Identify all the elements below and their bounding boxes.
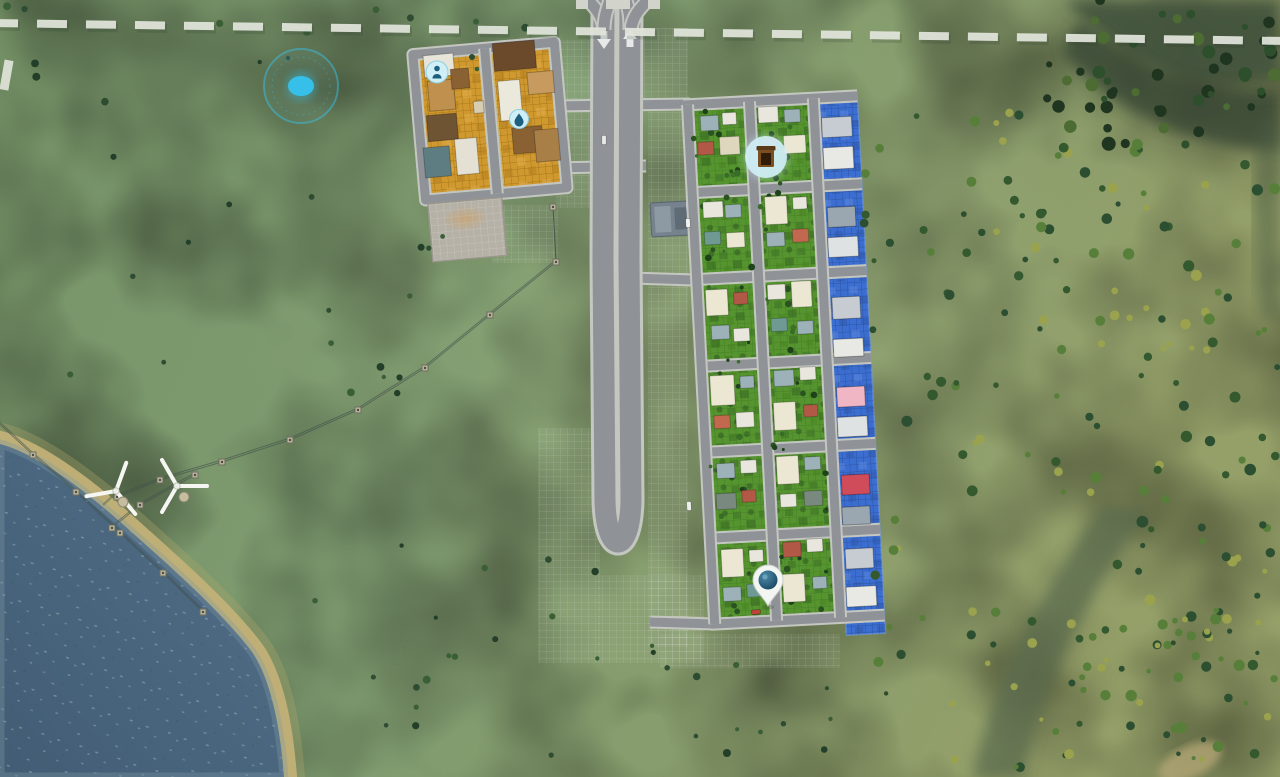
tree [1227, 629, 1232, 634]
tree [1239, 457, 1246, 464]
house[interactable] [721, 548, 744, 577]
power-pylon-top [139, 504, 141, 506]
tree [1020, 213, 1025, 218]
tree [258, 60, 262, 64]
tree [1104, 77, 1112, 85]
power-pylon-top [357, 409, 359, 411]
house[interactable] [771, 318, 788, 332]
house[interactable] [749, 549, 764, 562]
ramp-abutment [618, 0, 630, 9]
turbine-base [179, 492, 189, 502]
tree [1079, 674, 1085, 680]
tree [875, 144, 884, 153]
tree [1255, 620, 1261, 626]
tree [1116, 201, 1121, 206]
house[interactable] [719, 136, 740, 155]
commercial-building[interactable] [828, 236, 859, 258]
tree [1087, 488, 1095, 496]
tree [1111, 287, 1118, 294]
concrete-lot[interactable] [428, 197, 507, 261]
tree [961, 211, 967, 217]
tree [723, 749, 731, 757]
tree [1262, 569, 1267, 574]
tree [1005, 109, 1013, 117]
tree [549, 753, 554, 758]
tree [1055, 152, 1062, 159]
tree [347, 389, 355, 397]
tree [1145, 595, 1156, 606]
tree [1208, 91, 1215, 98]
tree [1199, 538, 1206, 545]
tree [1037, 326, 1042, 331]
tree [924, 373, 931, 380]
tree [862, 211, 870, 219]
house[interactable] [697, 141, 714, 155]
tree [1014, 110, 1023, 119]
tree [473, 19, 479, 25]
tree [549, 613, 555, 619]
house[interactable] [704, 231, 721, 245]
tree [1028, 617, 1037, 626]
tree [1175, 722, 1186, 733]
tree [1063, 286, 1070, 293]
tree [1199, 756, 1205, 762]
house[interactable] [723, 587, 742, 602]
power-pylon-top [221, 461, 223, 463]
tree [919, 615, 925, 621]
tree [412, 722, 419, 729]
tree [1099, 185, 1106, 192]
commercial-building[interactable] [842, 506, 871, 525]
tree [1203, 346, 1210, 353]
tree [1259, 434, 1267, 442]
house[interactable] [711, 325, 730, 340]
house[interactable] [799, 366, 816, 380]
tree [1057, 345, 1066, 354]
house[interactable] [726, 232, 745, 248]
tree [1193, 126, 1204, 137]
turbine-hub [174, 483, 180, 489]
house[interactable] [780, 494, 797, 508]
tree [1254, 593, 1260, 599]
tree [1103, 124, 1112, 133]
tree [407, 293, 412, 298]
connector-road[interactable] [650, 622, 714, 624]
tree [1076, 721, 1082, 727]
residential-district[interactable] [684, 96, 886, 642]
tree [1152, 69, 1164, 81]
worker-notification-icon[interactable] [426, 61, 448, 83]
tree [1250, 749, 1260, 759]
tree [1131, 88, 1139, 96]
tree [970, 116, 980, 126]
tree [927, 248, 935, 256]
tree [1256, 330, 1262, 336]
tree [1097, 31, 1110, 44]
house[interactable] [766, 232, 785, 247]
radio-pulse-effect [263, 48, 339, 124]
industrial-building[interactable] [473, 101, 484, 114]
water-notification-icon[interactable] [510, 110, 529, 129]
tree [1239, 67, 1252, 80]
commercial-building[interactable] [845, 548, 874, 569]
vehicle[interactable] [686, 218, 691, 227]
tree [920, 226, 928, 234]
tree [967, 485, 978, 496]
tree [1224, 694, 1233, 703]
tree [1051, 457, 1060, 466]
tree [67, 371, 73, 377]
tree [1108, 183, 1118, 193]
tree [396, 374, 402, 380]
commercial-building[interactable] [837, 386, 866, 407]
tree [1159, 123, 1170, 134]
tree [978, 229, 985, 236]
tree [1173, 672, 1183, 682]
house[interactable] [725, 204, 742, 218]
tree [1219, 656, 1224, 661]
house[interactable] [767, 284, 786, 300]
tree [1192, 756, 1196, 760]
tree [896, 650, 905, 659]
tree [936, 377, 946, 387]
tree [1053, 258, 1059, 264]
tree [101, 98, 109, 106]
tree [1179, 401, 1189, 411]
tree [1110, 310, 1120, 320]
tree [595, 656, 599, 660]
house[interactable] [714, 415, 731, 429]
house[interactable] [783, 541, 802, 557]
tree [384, 723, 389, 728]
house[interactable] [793, 197, 808, 210]
tree [1054, 467, 1063, 476]
house[interactable] [803, 404, 818, 417]
industrial-building[interactable] [423, 146, 452, 178]
tree [958, 450, 967, 459]
commercial-building[interactable] [832, 296, 861, 319]
tree [968, 607, 977, 616]
tree [1039, 315, 1048, 324]
tree [1100, 690, 1110, 700]
tree [953, 380, 959, 386]
vehicle[interactable] [687, 501, 692, 510]
tree [1191, 270, 1202, 281]
house[interactable] [710, 375, 736, 406]
tree [927, 390, 938, 401]
tree [1010, 196, 1019, 205]
tree [1222, 552, 1231, 561]
tree [186, 240, 191, 245]
trash-front [761, 153, 771, 165]
tree [1085, 413, 1093, 421]
tree [1257, 88, 1265, 96]
house[interactable] [797, 321, 814, 335]
tree [1104, 657, 1109, 662]
industrial-building[interactable] [527, 70, 555, 94]
house[interactable] [792, 229, 809, 243]
tree [394, 390, 400, 396]
commercial-building[interactable] [837, 416, 868, 438]
tree [1054, 393, 1059, 398]
tree [1182, 616, 1188, 622]
tree [1175, 629, 1183, 637]
tree [328, 340, 334, 346]
industrial-building[interactable] [492, 40, 536, 72]
tree [1208, 337, 1218, 347]
tree [1139, 486, 1149, 496]
house[interactable] [812, 576, 827, 589]
tree [1244, 464, 1256, 476]
tree [591, 568, 598, 575]
house[interactable] [722, 112, 737, 125]
tree [1264, 713, 1272, 721]
tree [1064, 749, 1074, 759]
tree [872, 258, 877, 263]
garbage-notification-icon[interactable] [743, 134, 789, 180]
tree [1001, 309, 1008, 316]
house[interactable] [804, 490, 823, 506]
tree [1136, 699, 1143, 706]
tree [373, 6, 380, 13]
house[interactable] [776, 455, 799, 484]
house[interactable] [700, 115, 719, 131]
tree [891, 516, 899, 524]
commercial-building[interactable] [846, 586, 877, 608]
house[interactable] [791, 281, 812, 308]
tree [966, 177, 976, 187]
tree [993, 228, 1000, 235]
tree [1201, 737, 1206, 742]
tree [1146, 669, 1151, 674]
tree [991, 608, 1000, 617]
tree [860, 219, 869, 228]
industrial-building[interactable] [450, 68, 470, 89]
house[interactable] [705, 289, 728, 316]
tree [413, 684, 420, 691]
tree [1263, 17, 1275, 29]
commercial-building[interactable] [821, 116, 852, 138]
tree [1159, 11, 1166, 18]
power-pylon-top [552, 206, 554, 208]
tree [492, 636, 498, 642]
house[interactable] [733, 328, 750, 342]
tree [1139, 373, 1144, 378]
tree [1247, 103, 1255, 111]
house[interactable] [773, 402, 796, 431]
tree [886, 239, 894, 247]
tree [1222, 471, 1229, 478]
vehicle[interactable] [602, 136, 606, 145]
tree [1101, 96, 1107, 102]
tree [825, 686, 829, 690]
house[interactable] [740, 376, 755, 389]
tree [482, 565, 488, 571]
tree [1215, 289, 1222, 296]
tree [1126, 690, 1137, 701]
tree [985, 661, 991, 667]
tree [1014, 271, 1023, 280]
industrial-building[interactable] [534, 128, 561, 162]
tree [1093, 66, 1106, 79]
tree [1181, 431, 1192, 442]
tree [1213, 741, 1224, 752]
tree [1061, 489, 1067, 495]
tree [990, 641, 996, 647]
commercial-building[interactable] [827, 206, 856, 227]
tree [1173, 380, 1179, 386]
tree [1223, 103, 1230, 110]
tree [1201, 181, 1209, 189]
tree [962, 248, 971, 257]
tree [1089, 248, 1099, 258]
tree [1039, 717, 1043, 721]
ramp-abutment [606, 0, 618, 9]
tree [326, 308, 331, 313]
tree [1160, 346, 1166, 352]
tree [650, 644, 654, 648]
power-pylon-top [489, 314, 491, 316]
tree [901, 416, 912, 427]
tree [1180, 319, 1191, 330]
tree [1036, 222, 1046, 232]
tree [821, 746, 828, 753]
power-pylon-top [32, 454, 34, 456]
house[interactable] [764, 196, 787, 225]
city-map [0, 0, 1280, 777]
tree [110, 154, 116, 160]
tree [1080, 687, 1086, 693]
power-pylon-top [119, 532, 121, 534]
house[interactable] [716, 493, 737, 510]
tree [1201, 662, 1211, 672]
tree [377, 363, 385, 371]
tree [1091, 16, 1100, 25]
tree [1059, 143, 1069, 153]
tree [1158, 619, 1168, 629]
tree [22, 6, 28, 12]
tree [1187, 631, 1196, 640]
tree [1011, 683, 1018, 690]
tree [1102, 626, 1110, 634]
vehicle[interactable] [751, 609, 760, 614]
house[interactable] [806, 538, 823, 552]
tree [1183, 260, 1194, 271]
tree [1248, 660, 1258, 670]
tree [312, 598, 318, 604]
tree [1126, 721, 1135, 730]
tree [1166, 341, 1171, 346]
house[interactable] [784, 109, 801, 123]
tree [1141, 190, 1147, 196]
house[interactable] [758, 106, 779, 123]
tree [1204, 628, 1210, 634]
house[interactable] [774, 370, 795, 387]
house[interactable] [740, 460, 757, 474]
house[interactable] [782, 573, 805, 602]
tree [1230, 392, 1241, 403]
tree [545, 556, 552, 563]
tree [861, 169, 870, 178]
tree [781, 721, 786, 726]
tree [735, 727, 739, 731]
tree [426, 246, 431, 251]
tree [870, 326, 877, 333]
house[interactable] [742, 490, 757, 503]
tree [423, 676, 431, 684]
power-pylon-top [424, 367, 426, 369]
tree [694, 734, 699, 739]
tree [884, 691, 888, 695]
tree [1143, 305, 1149, 311]
tree [871, 570, 880, 579]
tree [32, 73, 40, 81]
tree [1176, 752, 1181, 757]
tree [1172, 618, 1178, 624]
commercial-building[interactable] [833, 338, 864, 358]
tree [951, 755, 959, 763]
game-viewport[interactable] [0, 0, 1280, 777]
tree [1171, 640, 1176, 645]
tree [1213, 608, 1219, 614]
house[interactable] [733, 292, 748, 305]
tree [889, 545, 899, 555]
industrial-building[interactable] [426, 113, 458, 142]
commercial-building[interactable] [841, 474, 870, 495]
tree [1224, 293, 1232, 301]
tree [452, 653, 458, 659]
tree [399, 543, 403, 547]
commercial-building[interactable] [823, 146, 854, 170]
tree [434, 616, 438, 620]
tree [371, 675, 376, 680]
power-pylon-top [194, 474, 196, 476]
tree [1113, 560, 1123, 570]
power-pylon-top [75, 491, 77, 493]
tree [1052, 728, 1059, 735]
ramp-abutment [576, 0, 588, 9]
tree [1205, 436, 1215, 446]
tree [1052, 100, 1065, 113]
tree [1161, 495, 1169, 503]
tree [226, 202, 232, 208]
house[interactable] [703, 201, 724, 218]
tree [1089, 633, 1097, 641]
unzoned-grid-lines [648, 102, 688, 647]
tree [1189, 345, 1194, 350]
tree [1155, 105, 1167, 117]
tree [944, 290, 954, 300]
tree [1155, 643, 1161, 649]
tree [972, 440, 978, 446]
house[interactable] [716, 463, 735, 479]
power-pylon-top [555, 261, 557, 263]
tree [1107, 89, 1117, 99]
tree [1086, 78, 1099, 91]
turbine-hub [113, 488, 119, 494]
house[interactable] [804, 456, 821, 470]
house[interactable] [736, 412, 755, 428]
tree [1132, 139, 1143, 150]
tree [309, 194, 315, 200]
tree [1140, 543, 1145, 548]
tree [1154, 466, 1162, 474]
tree [1097, 663, 1105, 671]
tree [382, 375, 386, 379]
industrial-building[interactable] [454, 137, 479, 175]
unzoned-grid-lines [538, 428, 600, 663]
tree [216, 20, 223, 27]
